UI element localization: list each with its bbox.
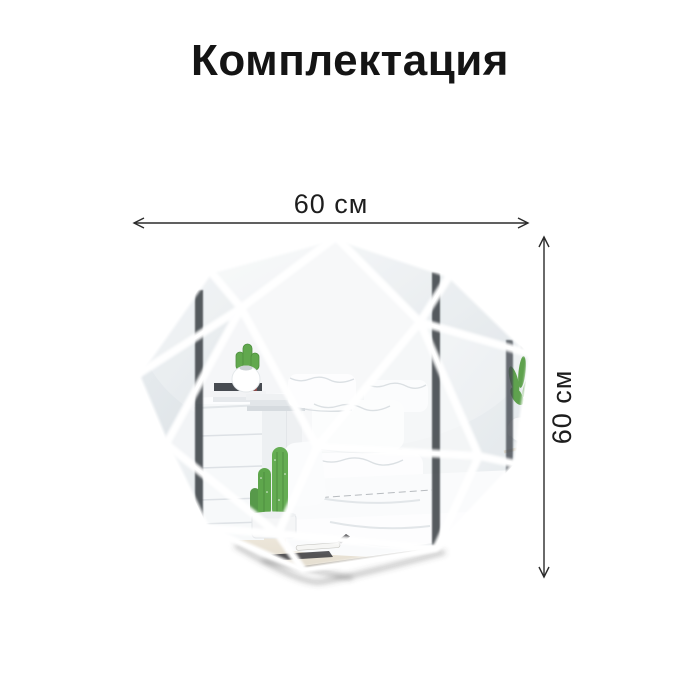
height-dimension-label: 60 см (547, 370, 577, 445)
wardrobe-stripe-far-right (506, 340, 513, 474)
wardrobe-stripe-left (195, 290, 203, 524)
faceted-mirror (137, 210, 540, 570)
product-infographic: Комплектация (0, 0, 700, 700)
width-dimension-label: 60 см (294, 189, 369, 219)
wardrobe-stripe-right (432, 272, 440, 546)
mirror-dimension-diagram: 60 см 60 см (0, 0, 700, 700)
width-dimension (134, 218, 528, 228)
